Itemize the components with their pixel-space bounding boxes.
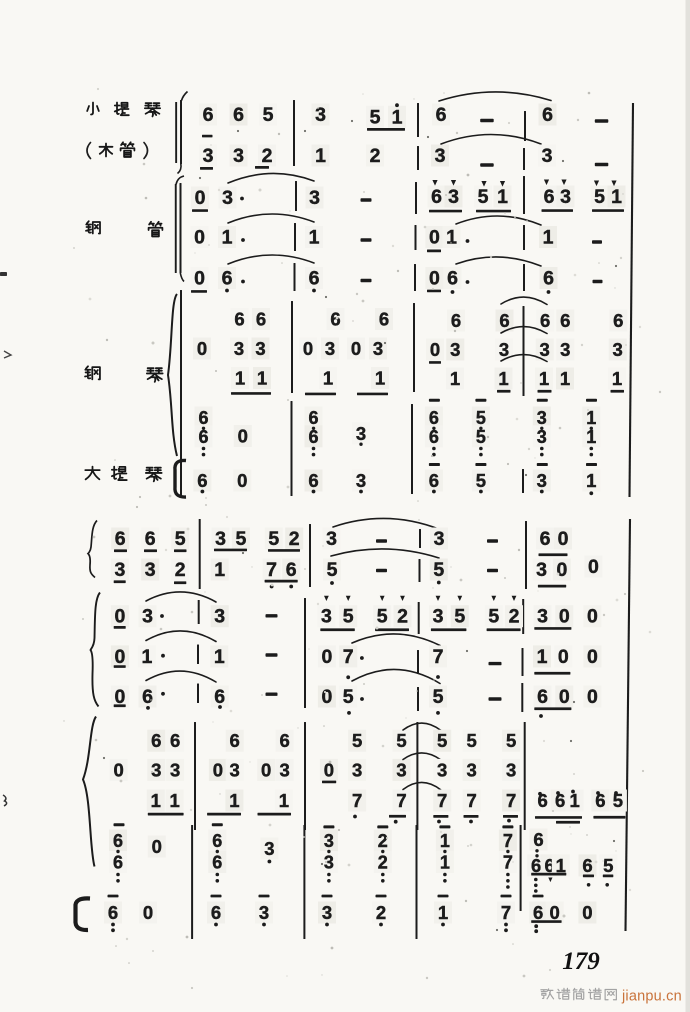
- svg-text:1: 1: [537, 646, 548, 668]
- svg-text:0: 0: [303, 338, 313, 359]
- svg-text:6: 6: [142, 686, 153, 708]
- svg-text:3: 3: [230, 759, 240, 780]
- svg-text:0: 0: [351, 338, 361, 359]
- svg-text:0: 0: [429, 268, 440, 290]
- svg-text:3: 3: [234, 338, 244, 359]
- svg-text:0: 0: [194, 268, 205, 290]
- svg-text:3: 3: [151, 759, 161, 780]
- svg-text:6: 6: [537, 686, 548, 708]
- svg-text:2: 2: [376, 902, 386, 923]
- svg-text:7: 7: [352, 790, 362, 811]
- svg-text:5: 5: [478, 186, 489, 208]
- svg-text:3: 3: [279, 759, 289, 780]
- svg-text:5: 5: [437, 730, 447, 751]
- svg-text:3: 3: [259, 902, 269, 923]
- svg-text:5: 5: [454, 606, 465, 628]
- svg-text:2: 2: [378, 831, 388, 851]
- svg-text:5: 5: [377, 606, 388, 628]
- svg-text:6: 6: [222, 268, 233, 290]
- svg-text:1: 1: [392, 106, 403, 128]
- svg-text:3: 3: [540, 339, 550, 360]
- svg-text:5: 5: [327, 559, 338, 581]
- svg-text:1: 1: [446, 227, 457, 249]
- svg-text:6: 6: [429, 470, 439, 491]
- svg-text:1: 1: [229, 790, 239, 811]
- svg-text:1: 1: [279, 790, 289, 811]
- svg-text:5: 5: [433, 559, 444, 581]
- svg-text:5: 5: [594, 186, 605, 208]
- svg-text:6: 6: [211, 902, 221, 923]
- svg-text:6: 6: [203, 104, 214, 126]
- svg-text:6: 6: [309, 268, 320, 290]
- svg-text:3: 3: [433, 606, 444, 628]
- svg-text:6: 6: [431, 186, 442, 208]
- svg-text:3: 3: [613, 339, 623, 360]
- svg-text:6: 6: [108, 902, 118, 923]
- svg-text:3: 3: [506, 759, 516, 780]
- svg-text:3: 3: [396, 759, 406, 780]
- svg-text:2: 2: [370, 145, 381, 167]
- svg-text:0: 0: [550, 902, 560, 923]
- svg-text:0: 0: [152, 836, 162, 857]
- svg-text:3: 3: [499, 339, 509, 360]
- svg-text:3: 3: [215, 528, 226, 550]
- svg-text:6: 6: [451, 310, 461, 331]
- svg-text:3: 3: [437, 759, 447, 780]
- svg-text:1: 1: [214, 646, 225, 668]
- svg-text:0: 0: [321, 686, 332, 708]
- svg-text:3: 3: [255, 338, 265, 359]
- svg-text:1: 1: [586, 408, 596, 428]
- svg-text:3: 3: [434, 528, 445, 550]
- svg-text:3: 3: [466, 759, 476, 780]
- svg-text:3: 3: [222, 187, 233, 209]
- svg-text:7: 7: [437, 790, 447, 811]
- svg-text:6: 6: [151, 730, 161, 751]
- svg-text:3: 3: [325, 338, 335, 359]
- svg-text:6: 6: [286, 559, 297, 581]
- svg-text:5: 5: [343, 686, 354, 708]
- svg-text:3: 3: [326, 528, 337, 550]
- svg-text:5: 5: [268, 528, 279, 550]
- svg-text:1: 1: [450, 368, 460, 389]
- svg-text:6: 6: [533, 829, 543, 850]
- svg-text:0: 0: [114, 606, 125, 628]
- svg-text:3: 3: [322, 902, 332, 923]
- svg-text:jianpu.cn: jianpu.cn: [621, 989, 682, 1005]
- svg-text:7: 7: [343, 646, 354, 668]
- svg-text:179: 179: [562, 948, 600, 975]
- svg-text:6: 6: [499, 310, 509, 331]
- svg-text:0: 0: [587, 686, 598, 708]
- svg-text:3: 3: [321, 606, 332, 628]
- svg-text:1: 1: [539, 368, 549, 389]
- svg-text:0: 0: [197, 338, 207, 359]
- svg-text:2: 2: [509, 606, 520, 628]
- svg-text:3: 3: [542, 145, 553, 167]
- svg-text:7: 7: [466, 790, 476, 811]
- svg-text:7: 7: [501, 902, 511, 923]
- svg-text:6: 6: [113, 831, 123, 851]
- svg-text:3: 3: [435, 145, 446, 167]
- svg-text:0: 0: [321, 646, 332, 668]
- svg-text:6: 6: [234, 309, 244, 330]
- svg-text:6: 6: [170, 730, 180, 751]
- svg-text:5: 5: [433, 686, 444, 708]
- svg-text:2: 2: [262, 145, 273, 167]
- svg-text:1: 1: [543, 227, 554, 249]
- svg-text:3: 3: [145, 559, 156, 581]
- svg-text:6: 6: [256, 309, 266, 330]
- svg-text:0: 0: [588, 556, 599, 578]
- svg-text:6: 6: [115, 528, 126, 550]
- svg-text:6: 6: [233, 104, 244, 126]
- svg-text:0: 0: [261, 759, 271, 780]
- svg-text:5: 5: [476, 408, 486, 428]
- svg-text:1: 1: [141, 646, 152, 668]
- svg-text:1: 1: [214, 559, 225, 581]
- svg-text:1: 1: [586, 470, 596, 491]
- svg-text:7: 7: [503, 831, 513, 851]
- svg-text:1: 1: [438, 902, 448, 923]
- svg-text:5: 5: [603, 855, 613, 876]
- svg-text:1: 1: [235, 368, 245, 389]
- svg-text:0: 0: [556, 559, 567, 581]
- svg-text:3: 3: [560, 339, 570, 360]
- svg-text:0: 0: [582, 902, 592, 923]
- svg-text:1: 1: [497, 186, 508, 208]
- svg-text:6: 6: [540, 528, 551, 550]
- svg-text:6: 6: [542, 104, 553, 126]
- svg-text:6: 6: [212, 853, 222, 873]
- svg-text:6: 6: [145, 528, 156, 550]
- svg-text:0: 0: [430, 339, 440, 360]
- svg-text:0: 0: [213, 759, 223, 780]
- svg-text:6: 6: [531, 855, 541, 876]
- svg-text:1: 1: [375, 368, 385, 389]
- svg-text:1: 1: [257, 368, 267, 389]
- svg-text:6: 6: [613, 310, 623, 331]
- svg-text:1: 1: [440, 853, 450, 873]
- svg-text:6: 6: [533, 902, 543, 923]
- svg-text:1: 1: [323, 368, 333, 389]
- svg-text:7: 7: [266, 559, 277, 581]
- svg-text:1: 1: [560, 368, 570, 389]
- svg-text:3: 3: [203, 145, 214, 167]
- svg-text:7: 7: [503, 853, 513, 873]
- svg-text:3: 3: [264, 838, 274, 859]
- svg-text:6: 6: [308, 408, 318, 428]
- svg-text:3: 3: [537, 606, 548, 628]
- svg-text:1: 1: [440, 831, 450, 851]
- svg-text:2: 2: [397, 606, 408, 628]
- svg-text:0: 0: [113, 759, 123, 780]
- svg-text:5: 5: [506, 730, 516, 751]
- svg-text:3: 3: [309, 187, 320, 209]
- svg-text:1: 1: [612, 368, 622, 389]
- svg-text:0: 0: [143, 902, 153, 923]
- svg-text:7: 7: [433, 646, 444, 668]
- svg-text:0: 0: [559, 686, 570, 708]
- svg-text:6: 6: [543, 268, 554, 290]
- svg-text:1: 1: [498, 368, 508, 389]
- svg-text:6: 6: [279, 730, 289, 751]
- svg-text:6: 6: [560, 310, 570, 331]
- svg-text:1: 1: [611, 186, 622, 208]
- svg-text:0: 0: [558, 528, 569, 550]
- svg-text:2: 2: [175, 559, 186, 581]
- svg-text:5: 5: [263, 104, 274, 126]
- svg-text:1: 1: [309, 227, 320, 249]
- svg-text:6: 6: [197, 470, 207, 491]
- svg-text:5: 5: [476, 470, 486, 491]
- svg-text:0: 0: [587, 606, 598, 628]
- svg-text:3: 3: [536, 559, 547, 581]
- svg-text:5: 5: [396, 730, 406, 751]
- svg-text:0: 0: [429, 227, 440, 249]
- svg-text:6: 6: [198, 408, 208, 428]
- svg-text:5: 5: [175, 528, 186, 550]
- svg-text:6: 6: [330, 309, 340, 330]
- svg-text:3: 3: [373, 338, 383, 359]
- svg-text:0: 0: [238, 426, 248, 447]
- svg-text:6: 6: [230, 730, 240, 751]
- svg-text:3: 3: [114, 559, 125, 581]
- svg-text:2: 2: [378, 853, 388, 873]
- svg-text:5: 5: [466, 730, 476, 751]
- svg-text:5: 5: [235, 528, 246, 550]
- svg-text:7: 7: [396, 790, 406, 811]
- svg-text:1: 1: [569, 790, 579, 811]
- svg-text:6: 6: [436, 104, 447, 126]
- svg-text:6: 6: [544, 186, 555, 208]
- svg-text:0: 0: [114, 646, 125, 668]
- svg-text:3: 3: [537, 408, 547, 428]
- svg-text:3: 3: [450, 339, 460, 360]
- svg-text:6: 6: [582, 855, 592, 876]
- svg-text:0: 0: [559, 606, 570, 628]
- svg-text:3: 3: [214, 606, 225, 628]
- svg-text:6: 6: [379, 309, 389, 330]
- svg-text:3: 3: [448, 186, 459, 208]
- svg-text:6: 6: [113, 853, 123, 873]
- svg-text:3: 3: [356, 423, 366, 444]
- svg-text:3: 3: [324, 831, 334, 851]
- svg-text:6: 6: [212, 831, 222, 851]
- svg-text:7: 7: [506, 790, 516, 811]
- svg-text:5: 5: [343, 606, 354, 628]
- svg-text:0: 0: [587, 646, 598, 668]
- svg-text:2: 2: [289, 528, 300, 550]
- svg-text:1: 1: [315, 145, 326, 167]
- svg-text:0: 0: [237, 470, 247, 491]
- svg-text:0: 0: [195, 187, 206, 209]
- svg-text:3: 3: [315, 104, 326, 126]
- svg-text:3: 3: [233, 145, 244, 167]
- svg-text:3: 3: [352, 759, 362, 780]
- svg-text:5: 5: [352, 730, 362, 751]
- svg-text:6: 6: [214, 686, 225, 708]
- svg-text:1: 1: [151, 790, 161, 811]
- svg-text:6: 6: [429, 408, 439, 428]
- svg-text:6: 6: [447, 268, 458, 290]
- svg-text:3: 3: [142, 606, 153, 628]
- svg-text:5: 5: [488, 606, 499, 628]
- svg-text:6: 6: [540, 310, 550, 331]
- svg-text:0: 0: [558, 646, 569, 668]
- svg-text:3: 3: [170, 759, 180, 780]
- svg-text:3: 3: [356, 470, 366, 491]
- svg-text:3: 3: [560, 186, 571, 208]
- svg-text:0: 0: [194, 227, 205, 249]
- svg-text:5: 5: [370, 106, 381, 128]
- svg-text:1: 1: [222, 227, 233, 249]
- svg-text:1: 1: [169, 790, 179, 811]
- svg-text:6: 6: [308, 470, 318, 491]
- svg-text:1: 1: [556, 855, 566, 876]
- svg-text:3: 3: [537, 470, 547, 491]
